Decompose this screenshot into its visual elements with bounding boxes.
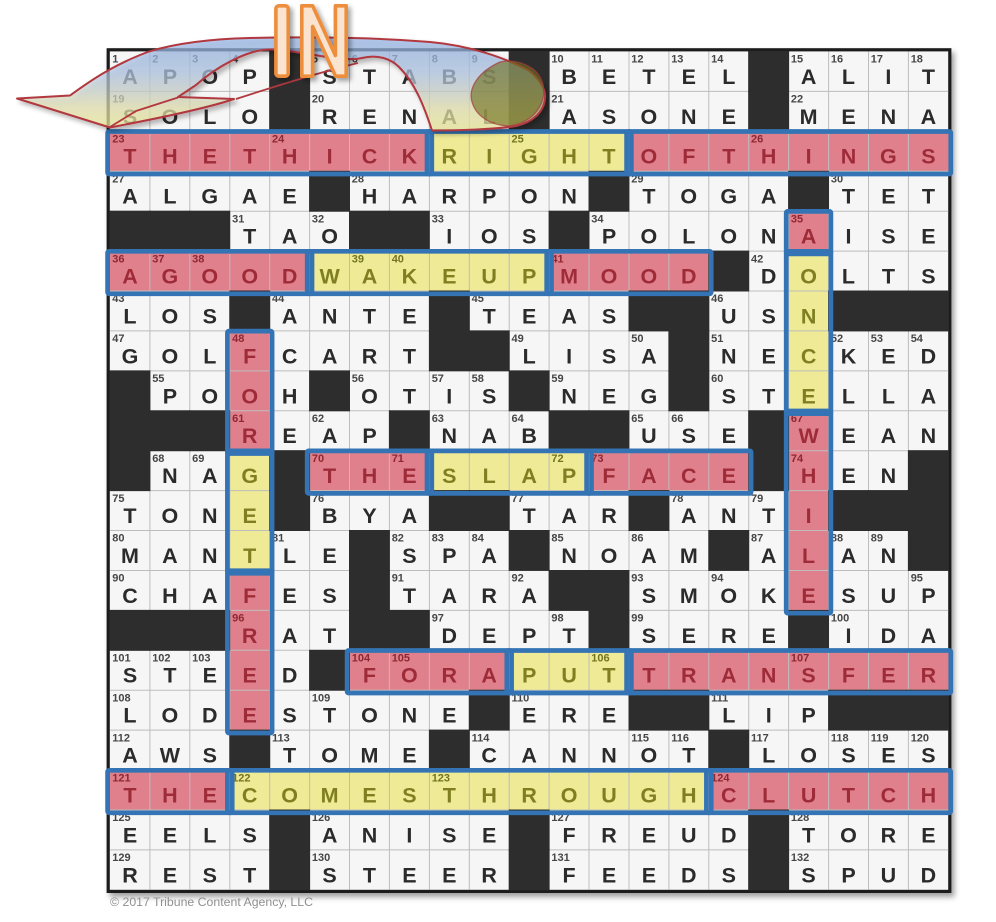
svg-text:G: G bbox=[641, 384, 658, 408]
svg-text:A: A bbox=[921, 624, 937, 648]
svg-text:T: T bbox=[602, 145, 615, 169]
svg-text:A: A bbox=[202, 584, 218, 608]
svg-text:99: 99 bbox=[631, 613, 643, 625]
svg-text:S: S bbox=[642, 584, 656, 608]
svg-text:S: S bbox=[322, 863, 336, 887]
svg-text:N: N bbox=[761, 225, 777, 249]
svg-text:S: S bbox=[243, 823, 257, 847]
svg-text:E: E bbox=[722, 464, 736, 488]
svg-text:A: A bbox=[322, 823, 338, 847]
svg-text:E: E bbox=[762, 624, 776, 648]
svg-text:N: N bbox=[202, 504, 218, 528]
svg-text:F: F bbox=[563, 823, 576, 847]
svg-text:24: 24 bbox=[272, 134, 285, 146]
svg-text:C: C bbox=[282, 344, 298, 368]
svg-text:105: 105 bbox=[392, 653, 410, 665]
svg-text:T: T bbox=[323, 624, 336, 648]
svg-text:A: A bbox=[641, 344, 657, 368]
svg-text:A: A bbox=[162, 544, 178, 568]
svg-text:N: N bbox=[561, 384, 577, 408]
svg-text:H: H bbox=[761, 145, 777, 169]
svg-text:E: E bbox=[682, 624, 696, 648]
svg-text:O: O bbox=[321, 744, 338, 768]
svg-text:R: R bbox=[881, 823, 897, 847]
svg-text:83: 83 bbox=[432, 533, 444, 545]
svg-text:64: 64 bbox=[512, 413, 525, 425]
svg-text:R: R bbox=[442, 145, 458, 169]
svg-text:E: E bbox=[602, 384, 616, 408]
svg-text:D: D bbox=[681, 265, 697, 289]
svg-text:16: 16 bbox=[831, 54, 843, 66]
svg-text:H: H bbox=[362, 185, 378, 209]
svg-text:I: I bbox=[846, 225, 852, 249]
svg-text:A: A bbox=[561, 304, 577, 328]
svg-text:72: 72 bbox=[551, 453, 563, 465]
svg-text:H: H bbox=[481, 784, 497, 808]
svg-text:N: N bbox=[721, 504, 737, 528]
svg-text:34: 34 bbox=[591, 213, 604, 225]
svg-text:53: 53 bbox=[871, 333, 883, 345]
svg-text:50: 50 bbox=[631, 333, 643, 345]
svg-text:R: R bbox=[681, 664, 697, 688]
svg-text:T: T bbox=[802, 823, 815, 847]
svg-text:106: 106 bbox=[591, 653, 609, 665]
svg-text:K: K bbox=[402, 265, 418, 289]
svg-text:O: O bbox=[800, 265, 817, 289]
svg-text:U: U bbox=[681, 823, 697, 847]
svg-text:46: 46 bbox=[711, 293, 723, 305]
svg-text:31: 31 bbox=[232, 213, 244, 225]
svg-text:39: 39 bbox=[352, 253, 364, 265]
svg-text:I: I bbox=[327, 145, 333, 169]
svg-text:36: 36 bbox=[112, 253, 124, 265]
svg-text:14: 14 bbox=[711, 54, 724, 66]
svg-text:108: 108 bbox=[112, 692, 130, 704]
svg-text:12: 12 bbox=[631, 54, 643, 66]
svg-text:S: S bbox=[921, 145, 935, 169]
svg-text:E: E bbox=[123, 823, 137, 847]
svg-text:N: N bbox=[561, 185, 577, 209]
svg-text:Y: Y bbox=[362, 504, 376, 528]
svg-text:L: L bbox=[123, 704, 136, 728]
svg-text:D: D bbox=[442, 624, 458, 648]
svg-text:S: S bbox=[722, 863, 736, 887]
svg-text:E: E bbox=[642, 823, 656, 847]
svg-text:E: E bbox=[881, 664, 895, 688]
svg-text:H: H bbox=[681, 784, 697, 808]
svg-text:T: T bbox=[842, 784, 855, 808]
svg-text:S: S bbox=[722, 384, 736, 408]
svg-text:D: D bbox=[681, 863, 697, 887]
svg-text:E: E bbox=[442, 863, 456, 887]
svg-text:R: R bbox=[561, 704, 577, 728]
svg-text:© 2017 Tribune Content Agency,: © 2017 Tribune Content Agency, LLC bbox=[110, 895, 313, 909]
svg-text:T: T bbox=[163, 664, 176, 688]
svg-text:A: A bbox=[402, 185, 418, 209]
svg-text:A: A bbox=[521, 584, 537, 608]
svg-text:F: F bbox=[363, 664, 376, 688]
svg-text:R: R bbox=[442, 185, 458, 209]
svg-text:O: O bbox=[162, 304, 179, 328]
svg-text:B: B bbox=[561, 65, 577, 89]
svg-text:E: E bbox=[722, 424, 736, 448]
svg-text:104: 104 bbox=[352, 653, 371, 665]
svg-text:A: A bbox=[561, 504, 577, 528]
svg-text:96: 96 bbox=[232, 613, 244, 625]
svg-text:G: G bbox=[201, 185, 218, 209]
svg-text:A: A bbox=[122, 185, 138, 209]
svg-text:N: N bbox=[561, 544, 577, 568]
svg-text:S: S bbox=[203, 304, 217, 328]
svg-text:35: 35 bbox=[791, 213, 803, 225]
svg-text:61: 61 bbox=[232, 413, 244, 425]
svg-text:T: T bbox=[642, 664, 655, 688]
svg-text:M: M bbox=[680, 584, 698, 608]
svg-text:O: O bbox=[401, 664, 418, 688]
svg-text:O: O bbox=[601, 544, 618, 568]
svg-text:S: S bbox=[282, 704, 296, 728]
svg-text:A: A bbox=[521, 744, 537, 768]
svg-text:112: 112 bbox=[112, 732, 130, 744]
svg-text:E: E bbox=[482, 624, 496, 648]
svg-text:S: S bbox=[841, 744, 855, 768]
svg-text:U: U bbox=[601, 784, 617, 808]
svg-text:R: R bbox=[601, 823, 617, 847]
svg-text:L: L bbox=[203, 344, 216, 368]
svg-text:N: N bbox=[561, 744, 577, 768]
svg-text:O: O bbox=[162, 704, 179, 728]
svg-text:E: E bbox=[163, 823, 177, 847]
svg-text:E: E bbox=[841, 105, 855, 129]
svg-text:I: I bbox=[486, 145, 492, 169]
svg-text:R: R bbox=[242, 424, 258, 448]
svg-text:T: T bbox=[443, 784, 456, 808]
svg-text:E: E bbox=[841, 424, 855, 448]
svg-text:D: D bbox=[881, 624, 897, 648]
svg-text:E: E bbox=[203, 664, 217, 688]
svg-text:M: M bbox=[361, 744, 379, 768]
svg-text:E: E bbox=[841, 464, 855, 488]
svg-text:I: I bbox=[766, 704, 772, 728]
svg-text:S: S bbox=[602, 105, 616, 129]
svg-text:21: 21 bbox=[551, 94, 563, 106]
svg-text:R: R bbox=[481, 584, 497, 608]
svg-text:32: 32 bbox=[312, 213, 324, 225]
svg-text:C: C bbox=[681, 464, 697, 488]
svg-text:98: 98 bbox=[551, 613, 563, 625]
svg-text:E: E bbox=[203, 784, 217, 808]
svg-text:E: E bbox=[921, 225, 935, 249]
svg-text:A: A bbox=[561, 105, 577, 129]
svg-text:P: P bbox=[522, 624, 536, 648]
svg-text:U: U bbox=[481, 265, 497, 289]
svg-text:L: L bbox=[203, 823, 216, 847]
svg-text:M: M bbox=[321, 784, 339, 808]
svg-text:K: K bbox=[761, 584, 777, 608]
svg-text:P: P bbox=[522, 265, 536, 289]
svg-text:T: T bbox=[642, 65, 655, 89]
svg-text:E: E bbox=[602, 65, 616, 89]
svg-text:79: 79 bbox=[751, 493, 763, 505]
svg-text:N: N bbox=[202, 544, 218, 568]
svg-text:L: L bbox=[722, 65, 735, 89]
svg-text:L: L bbox=[842, 265, 855, 289]
svg-text:56: 56 bbox=[352, 373, 364, 385]
svg-text:A: A bbox=[122, 744, 138, 768]
svg-text:103: 103 bbox=[192, 653, 210, 665]
svg-text:47: 47 bbox=[112, 333, 124, 345]
svg-text:75: 75 bbox=[112, 493, 124, 505]
svg-text:M: M bbox=[800, 105, 818, 129]
svg-text:T: T bbox=[762, 384, 775, 408]
svg-text:T: T bbox=[403, 384, 416, 408]
svg-text:E: E bbox=[402, 744, 416, 768]
svg-text:T: T bbox=[722, 145, 735, 169]
svg-text:N: N bbox=[322, 304, 338, 328]
svg-text:66: 66 bbox=[671, 413, 683, 425]
svg-text:20: 20 bbox=[312, 94, 324, 106]
svg-text:O: O bbox=[361, 704, 378, 728]
svg-text:A: A bbox=[921, 384, 937, 408]
svg-text:B: B bbox=[521, 424, 537, 448]
svg-text:F: F bbox=[243, 584, 256, 608]
svg-text:A: A bbox=[481, 664, 497, 688]
svg-text:80: 80 bbox=[112, 533, 124, 545]
svg-text:U: U bbox=[561, 664, 577, 688]
svg-text:U: U bbox=[721, 304, 737, 328]
svg-text:74: 74 bbox=[791, 453, 804, 465]
svg-text:F: F bbox=[842, 664, 855, 688]
svg-text:A: A bbox=[242, 185, 258, 209]
svg-text:T: T bbox=[323, 464, 336, 488]
svg-text:T: T bbox=[762, 504, 775, 528]
svg-text:T: T bbox=[922, 185, 935, 209]
svg-text:D: D bbox=[282, 664, 298, 688]
svg-text:N: N bbox=[921, 424, 937, 448]
svg-text:S: S bbox=[921, 744, 935, 768]
svg-text:K: K bbox=[402, 145, 418, 169]
svg-text:I: I bbox=[446, 225, 452, 249]
svg-text:T: T bbox=[243, 544, 256, 568]
svg-text:C: C bbox=[881, 784, 897, 808]
svg-text:G: G bbox=[241, 464, 258, 488]
svg-text:A: A bbox=[761, 544, 777, 568]
svg-text:K: K bbox=[841, 344, 857, 368]
svg-text:N: N bbox=[402, 704, 418, 728]
svg-text:A: A bbox=[322, 344, 338, 368]
svg-text:C: C bbox=[481, 744, 497, 768]
svg-text:D: D bbox=[921, 344, 937, 368]
svg-text:U: U bbox=[881, 863, 897, 887]
svg-text:O: O bbox=[720, 584, 737, 608]
svg-text:R: R bbox=[601, 504, 617, 528]
svg-text:124: 124 bbox=[711, 772, 730, 784]
svg-text:S: S bbox=[801, 664, 815, 688]
svg-text:26: 26 bbox=[751, 134, 763, 146]
svg-text:T: T bbox=[323, 704, 336, 728]
svg-text:I: I bbox=[566, 344, 572, 368]
svg-text:132: 132 bbox=[791, 852, 809, 864]
svg-text:11: 11 bbox=[591, 54, 603, 66]
svg-text:55: 55 bbox=[152, 373, 164, 385]
svg-text:E: E bbox=[402, 863, 416, 887]
svg-text:54: 54 bbox=[911, 333, 924, 345]
svg-text:O: O bbox=[162, 344, 179, 368]
svg-text:C: C bbox=[362, 145, 378, 169]
svg-text:L: L bbox=[682, 225, 695, 249]
svg-text:M: M bbox=[680, 544, 698, 568]
svg-text:E: E bbox=[362, 784, 376, 808]
svg-text:A: A bbox=[841, 544, 857, 568]
svg-text:S: S bbox=[801, 863, 815, 887]
svg-text:E: E bbox=[442, 704, 456, 728]
svg-text:L: L bbox=[842, 65, 855, 89]
svg-text:C: C bbox=[122, 584, 138, 608]
svg-text:N: N bbox=[601, 744, 617, 768]
svg-text:A: A bbox=[721, 664, 737, 688]
svg-text:89: 89 bbox=[871, 533, 883, 545]
svg-text:109: 109 bbox=[312, 692, 330, 704]
svg-text:T: T bbox=[682, 744, 695, 768]
svg-text:A: A bbox=[322, 424, 338, 448]
svg-text:L: L bbox=[483, 464, 496, 488]
svg-text:O: O bbox=[641, 265, 658, 289]
svg-text:E: E bbox=[282, 185, 296, 209]
svg-text:87: 87 bbox=[751, 533, 763, 545]
svg-text:E: E bbox=[402, 304, 416, 328]
svg-text:M: M bbox=[560, 265, 578, 289]
svg-text:L: L bbox=[163, 185, 176, 209]
svg-text:E: E bbox=[602, 704, 616, 728]
svg-text:68: 68 bbox=[152, 453, 164, 465]
svg-text:R: R bbox=[481, 863, 497, 887]
svg-text:T: T bbox=[363, 863, 376, 887]
svg-text:L: L bbox=[762, 784, 775, 808]
svg-text:L: L bbox=[882, 384, 895, 408]
svg-text:H: H bbox=[801, 464, 817, 488]
svg-text:R: R bbox=[362, 344, 378, 368]
svg-text:E: E bbox=[881, 344, 895, 368]
svg-text:D: D bbox=[721, 823, 737, 847]
svg-text:D: D bbox=[282, 265, 298, 289]
svg-text:S: S bbox=[921, 265, 935, 289]
svg-text:E: E bbox=[801, 584, 815, 608]
svg-text:I: I bbox=[406, 823, 412, 847]
svg-text:L: L bbox=[203, 105, 216, 129]
svg-text:90: 90 bbox=[112, 573, 124, 585]
svg-text:S: S bbox=[881, 225, 895, 249]
svg-text:O: O bbox=[162, 504, 179, 528]
svg-text:70: 70 bbox=[312, 453, 324, 465]
svg-text:15: 15 bbox=[791, 54, 803, 66]
svg-text:C: C bbox=[801, 344, 817, 368]
svg-text:S: S bbox=[442, 464, 456, 488]
svg-text:59: 59 bbox=[551, 373, 563, 385]
svg-text:L: L bbox=[762, 744, 775, 768]
svg-text:F: F bbox=[563, 863, 576, 887]
svg-text:N: N bbox=[402, 105, 418, 129]
svg-text:O: O bbox=[800, 744, 817, 768]
svg-text:H: H bbox=[561, 145, 577, 169]
svg-text:R: R bbox=[242, 624, 258, 648]
svg-text:G: G bbox=[521, 145, 538, 169]
svg-text:71: 71 bbox=[392, 453, 404, 465]
svg-text:A: A bbox=[282, 624, 298, 648]
svg-text:O: O bbox=[321, 225, 338, 249]
svg-text:65: 65 bbox=[631, 413, 643, 425]
svg-text:P: P bbox=[602, 225, 616, 249]
svg-text:O: O bbox=[241, 105, 258, 129]
svg-text:P: P bbox=[442, 544, 456, 568]
svg-text:118: 118 bbox=[831, 732, 849, 744]
svg-text:58: 58 bbox=[472, 373, 484, 385]
svg-text:N: N bbox=[881, 105, 897, 129]
svg-text:E: E bbox=[282, 584, 296, 608]
svg-text:S: S bbox=[402, 784, 416, 808]
svg-text:F: F bbox=[602, 464, 615, 488]
svg-text:T: T bbox=[243, 225, 256, 249]
svg-text:S: S bbox=[682, 424, 696, 448]
svg-text:42: 42 bbox=[751, 253, 763, 265]
svg-text:102: 102 bbox=[152, 653, 170, 665]
svg-text:130: 130 bbox=[312, 852, 330, 864]
svg-text:N: N bbox=[442, 424, 458, 448]
svg-text:O: O bbox=[680, 185, 697, 209]
svg-text:E: E bbox=[243, 704, 257, 728]
svg-text:S: S bbox=[482, 384, 496, 408]
svg-text:13: 13 bbox=[671, 54, 683, 66]
svg-text:R: R bbox=[721, 624, 737, 648]
svg-text:L: L bbox=[842, 384, 855, 408]
svg-text:120: 120 bbox=[911, 732, 929, 744]
svg-text:P: P bbox=[921, 584, 935, 608]
svg-text:A: A bbox=[681, 504, 697, 528]
svg-text:O: O bbox=[601, 265, 618, 289]
svg-text:82: 82 bbox=[392, 533, 404, 545]
svg-text:P: P bbox=[163, 384, 177, 408]
svg-text:62: 62 bbox=[312, 413, 324, 425]
svg-text:P: P bbox=[243, 65, 257, 89]
svg-text:U: U bbox=[641, 424, 657, 448]
svg-text:N: N bbox=[162, 464, 178, 488]
svg-text:H: H bbox=[362, 464, 378, 488]
svg-text:O: O bbox=[641, 744, 658, 768]
svg-text:F: F bbox=[682, 145, 695, 169]
svg-text:E: E bbox=[762, 344, 776, 368]
svg-text:E: E bbox=[402, 464, 416, 488]
svg-text:E: E bbox=[203, 145, 217, 169]
svg-text:84: 84 bbox=[472, 533, 485, 545]
svg-text:O: O bbox=[720, 225, 737, 249]
svg-text:E: E bbox=[881, 185, 895, 209]
svg-text:T: T bbox=[403, 344, 416, 368]
svg-text:P: P bbox=[482, 185, 496, 209]
svg-text:86: 86 bbox=[631, 533, 643, 545]
svg-text:L: L bbox=[802, 544, 815, 568]
svg-text:57: 57 bbox=[432, 373, 444, 385]
svg-text:O: O bbox=[521, 185, 538, 209]
svg-text:E: E bbox=[282, 424, 296, 448]
svg-text:I: I bbox=[806, 145, 812, 169]
svg-text:A: A bbox=[122, 265, 138, 289]
svg-text:C: C bbox=[242, 784, 258, 808]
svg-text:O: O bbox=[641, 105, 658, 129]
svg-text:R: R bbox=[442, 664, 458, 688]
svg-text:U: U bbox=[881, 584, 897, 608]
svg-text:T: T bbox=[642, 185, 655, 209]
svg-text:40: 40 bbox=[392, 253, 404, 265]
svg-text:N: N bbox=[681, 105, 697, 129]
